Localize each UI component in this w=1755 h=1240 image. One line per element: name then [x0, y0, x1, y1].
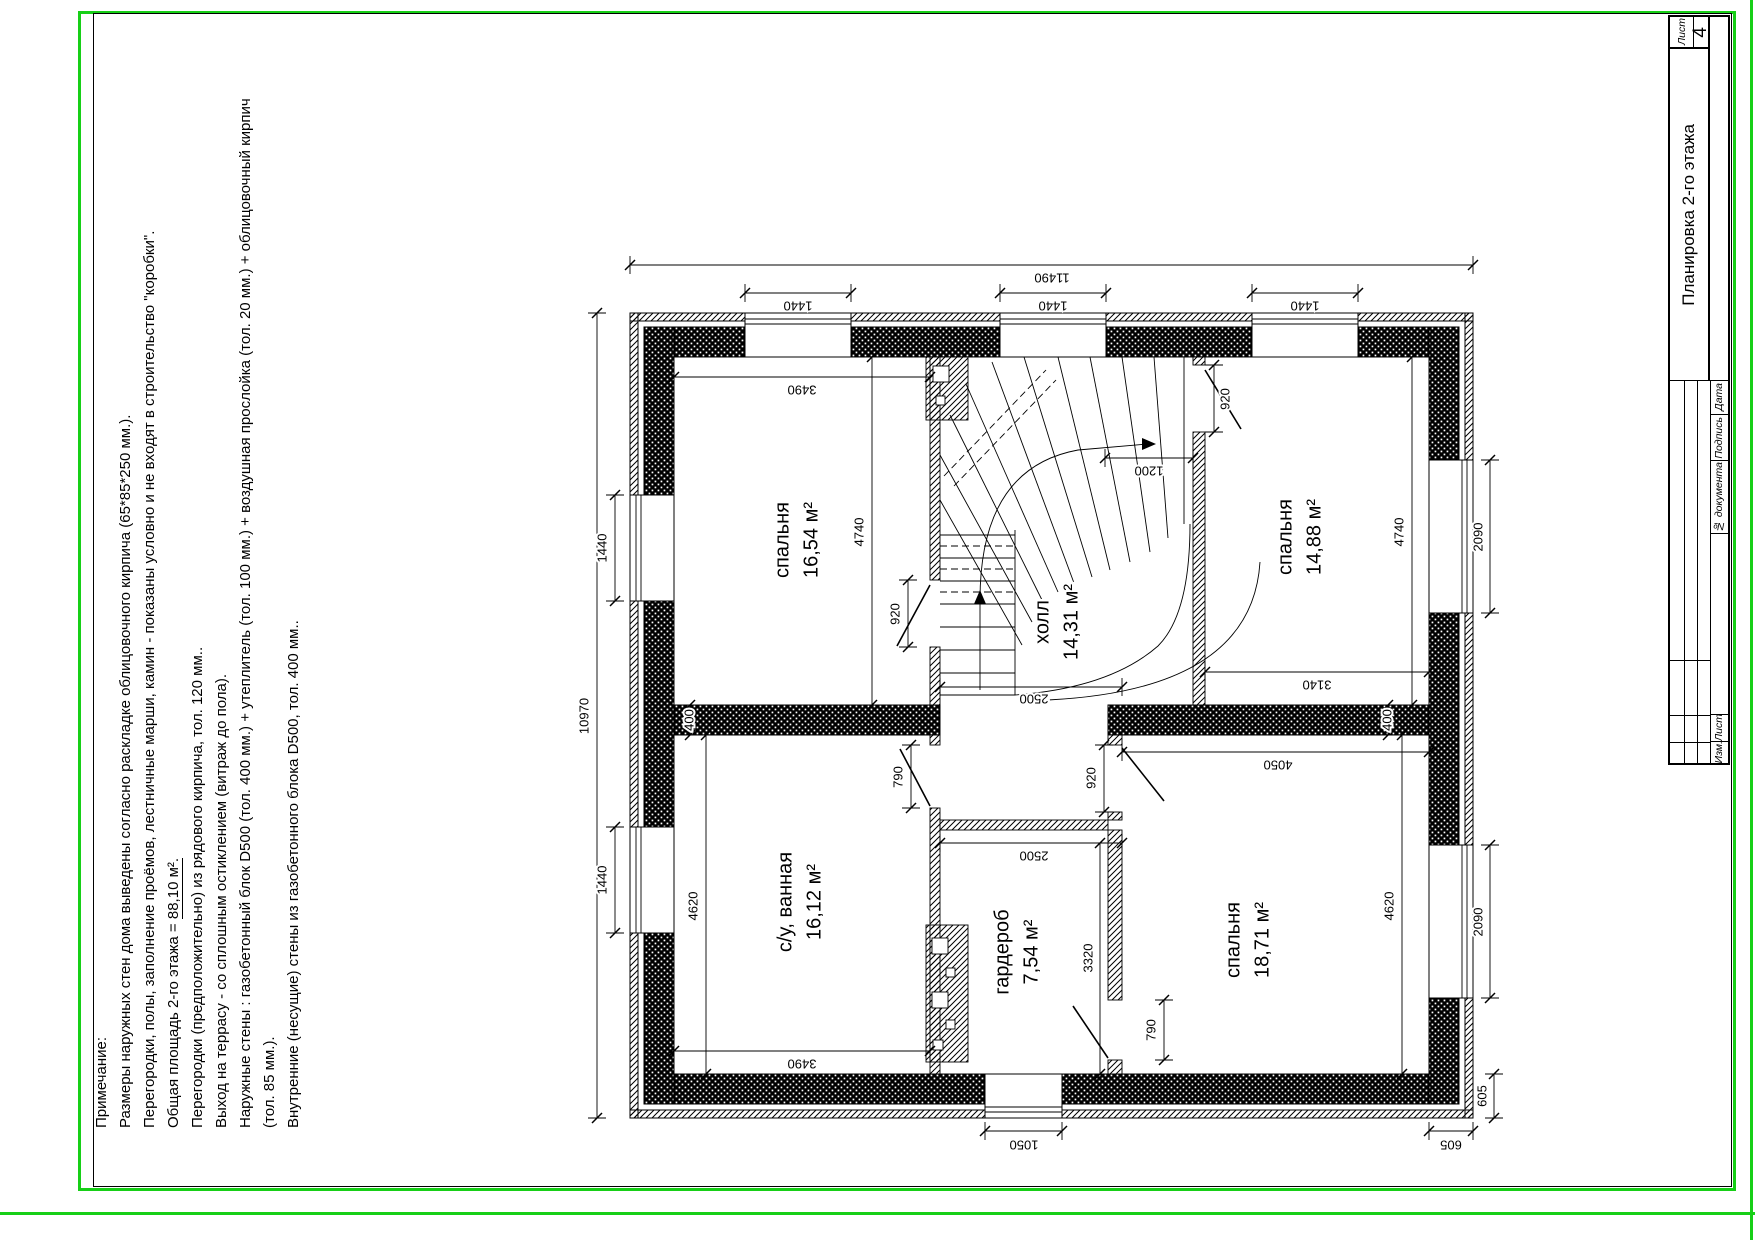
svg-text:1050: 1050 [1010, 1138, 1039, 1153]
floor-plan-drawing: 1149014401440144010970144014402090209060… [0, 0, 1755, 1240]
svg-text:3320: 3320 [1080, 944, 1095, 973]
drawing-title: Планировка 2-го этажа [1679, 124, 1699, 306]
svg-text:400: 400 [681, 709, 696, 731]
svg-text:спальня: спальня [771, 502, 793, 578]
svg-text:1200: 1200 [1135, 464, 1164, 479]
svg-text:1440: 1440 [784, 299, 813, 314]
svg-text:605: 605 [1474, 1085, 1489, 1107]
svg-text:920: 920 [1083, 767, 1098, 789]
svg-text:790: 790 [1143, 1019, 1158, 1041]
sheet-number: 4 [1690, 27, 1712, 38]
svg-text:1440: 1440 [594, 534, 609, 563]
svg-text:3140: 3140 [1303, 678, 1332, 693]
svg-text:4740: 4740 [851, 518, 866, 547]
svg-text:790: 790 [890, 766, 905, 788]
staircase [940, 357, 1260, 700]
svg-text:1440: 1440 [1291, 299, 1320, 314]
stamp-col-sign: Подпись [1713, 417, 1725, 459]
exterior-walls [630, 313, 1473, 1118]
dimension-lines: 1149014401440144010970144014402090209060… [576, 256, 1503, 1153]
svg-text:14,88 м²: 14,88 м² [1303, 499, 1325, 575]
svg-text:605: 605 [1440, 1138, 1462, 1153]
svg-text:14,31 м²: 14,31 м² [1060, 584, 1082, 660]
svg-text:4740: 4740 [1391, 518, 1406, 547]
svg-text:спальня: спальня [1274, 499, 1296, 575]
svg-text:2090: 2090 [1470, 908, 1485, 937]
stamp-grid-line [1670, 715, 1710, 716]
svg-text:1440: 1440 [594, 866, 609, 895]
svg-text:16,12 м²: 16,12 м² [803, 864, 825, 940]
svg-text:10970: 10970 [576, 698, 591, 734]
svg-text:3490: 3490 [788, 383, 817, 398]
stamp-grid-line [1697, 380, 1698, 763]
svg-text:18,71 м²: 18,71 м² [1251, 902, 1273, 978]
svg-text:11490: 11490 [1034, 271, 1069, 286]
svg-text:400: 400 [1379, 709, 1394, 731]
svg-text:7,54 м²: 7,54 м² [1020, 919, 1042, 984]
svg-text:с/у, ванная: с/у, ванная [774, 852, 796, 952]
svg-text:2090: 2090 [1470, 523, 1485, 552]
svg-text:920: 920 [1217, 388, 1232, 410]
stamp-grid-line [1670, 742, 1710, 743]
svg-text:3490: 3490 [788, 1057, 817, 1072]
svg-text:2500: 2500 [1020, 692, 1049, 707]
svg-text:4050: 4050 [1264, 758, 1293, 773]
stamp-col-list: Лист [1713, 714, 1725, 741]
stamp-grid-line [1670, 660, 1710, 661]
svg-text:16,54 м²: 16,54 м² [800, 502, 822, 578]
stamp-col-izm: Изм. [1713, 741, 1725, 763]
svg-text:4620: 4620 [685, 892, 700, 921]
svg-text:1440: 1440 [1039, 299, 1068, 314]
drawing-sheet: Примечание: Размеры наружных стен дома в… [0, 0, 1755, 1240]
stamp-grid-line [1684, 380, 1685, 763]
svg-text:2500: 2500 [1020, 849, 1049, 864]
svg-text:холл: холл [1031, 600, 1053, 644]
stamp-grid-line [1710, 380, 1711, 763]
room-labels: спальня16,54 м²спальня14,88 м²холл14,31 … [771, 499, 1325, 995]
svg-text:920: 920 [887, 603, 902, 625]
stamp-col-doc: № документа [1713, 462, 1725, 532]
svg-text:спальня: спальня [1222, 902, 1244, 978]
svg-text:4620: 4620 [1381, 892, 1396, 921]
stamp-col-date: Дата [1713, 383, 1725, 411]
svg-text:гардероб: гардероб [991, 909, 1013, 994]
title-block: Лист 4 Планировка 2-го этажа Дата Подпис… [1668, 15, 1730, 765]
stamp-sheet-word: Лист [1676, 18, 1688, 45]
